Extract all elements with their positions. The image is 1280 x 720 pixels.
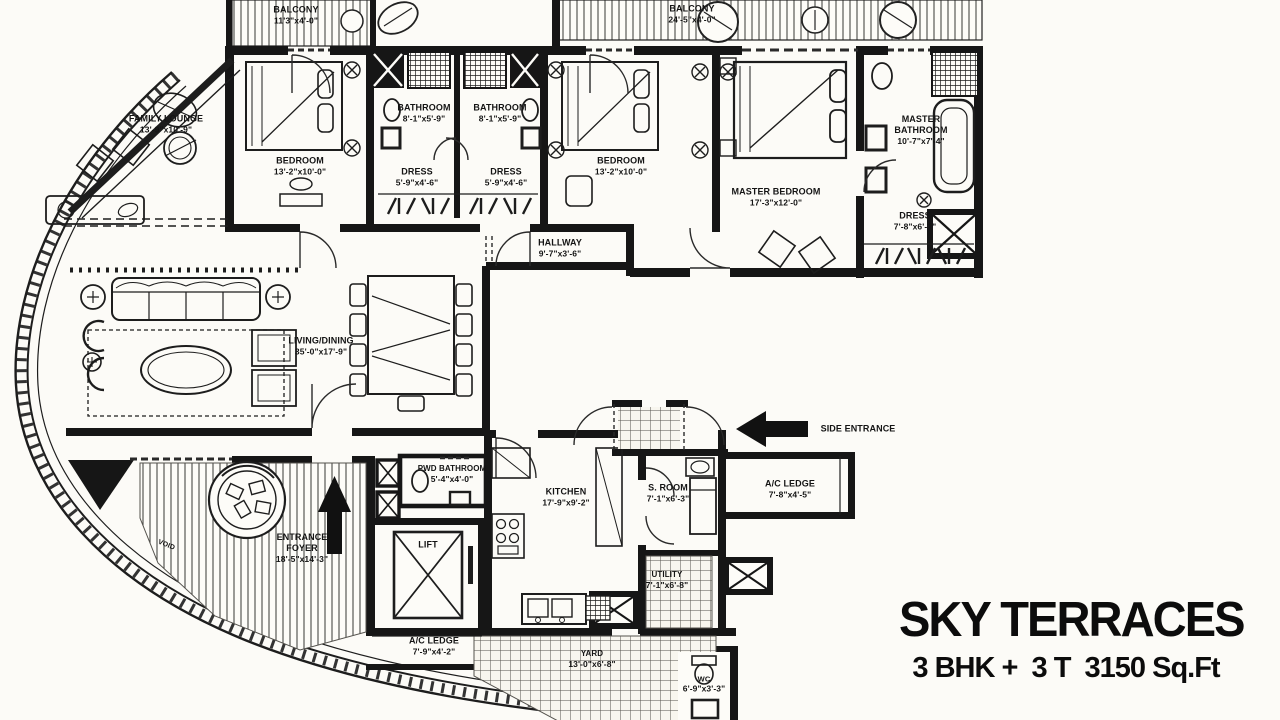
balcony-right-floor: [552, 0, 982, 46]
side-entrance-arrow-icon: [736, 411, 808, 447]
plan-subtitle: 3 BHK + 3 T 3150 Sq.Ft: [892, 652, 1240, 685]
shaft-x-icon: [726, 560, 770, 592]
entrance-foyer-area: [140, 462, 366, 650]
family-lounge-area: [46, 60, 240, 226]
living-dining-furniture: [70, 270, 472, 416]
shaft-x-icon: [930, 212, 978, 256]
shaft-x-icon: [377, 492, 399, 518]
title-block: SKY TERRACES 3 BHK + 3 T 3150 Sq.Ft: [892, 596, 1240, 685]
floor-plan-page: BALCONY11'3"x4'-0"BALCONY24'-5"x4'-0"FAM…: [0, 0, 1280, 720]
shaft-x-icon: [510, 52, 540, 88]
balcony-left-floor: [226, 0, 423, 46]
plan-title: SKY TERRACES: [899, 596, 1233, 645]
bedroom-furniture: [246, 58, 931, 273]
shaft-x-icon: [377, 460, 399, 486]
foyer-round-table: [209, 462, 285, 538]
lift-shaft: [394, 532, 473, 618]
kitchen-fixtures: [492, 448, 622, 624]
shaft-x-icon: [372, 52, 404, 88]
